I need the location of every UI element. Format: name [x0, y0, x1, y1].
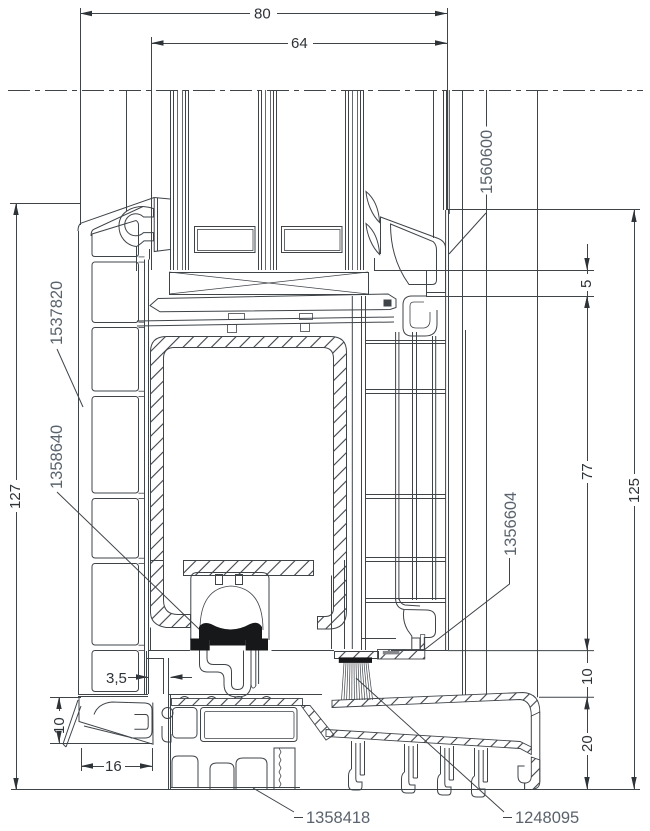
- svg-text:1358640: 1358640: [48, 425, 66, 489]
- svg-text:1560600: 1560600: [478, 130, 496, 194]
- svg-text:127: 127: [7, 484, 24, 509]
- svg-text:1248095: 1248095: [515, 809, 579, 827]
- svg-text:10: 10: [579, 668, 596, 685]
- svg-text:16: 16: [105, 758, 122, 775]
- svg-text:64: 64: [291, 35, 308, 52]
- svg-text:5: 5: [578, 280, 595, 288]
- svg-text:1358418: 1358418: [306, 809, 370, 827]
- svg-text:20: 20: [579, 735, 596, 752]
- svg-text:77: 77: [579, 463, 596, 480]
- svg-text:1356604: 1356604: [502, 492, 520, 556]
- svg-text:10: 10: [51, 717, 68, 734]
- svg-text:3,5: 3,5: [106, 670, 127, 687]
- svg-text:80: 80: [254, 6, 271, 23]
- svg-text:125: 125: [626, 478, 643, 503]
- svg-text:1537820: 1537820: [48, 281, 66, 345]
